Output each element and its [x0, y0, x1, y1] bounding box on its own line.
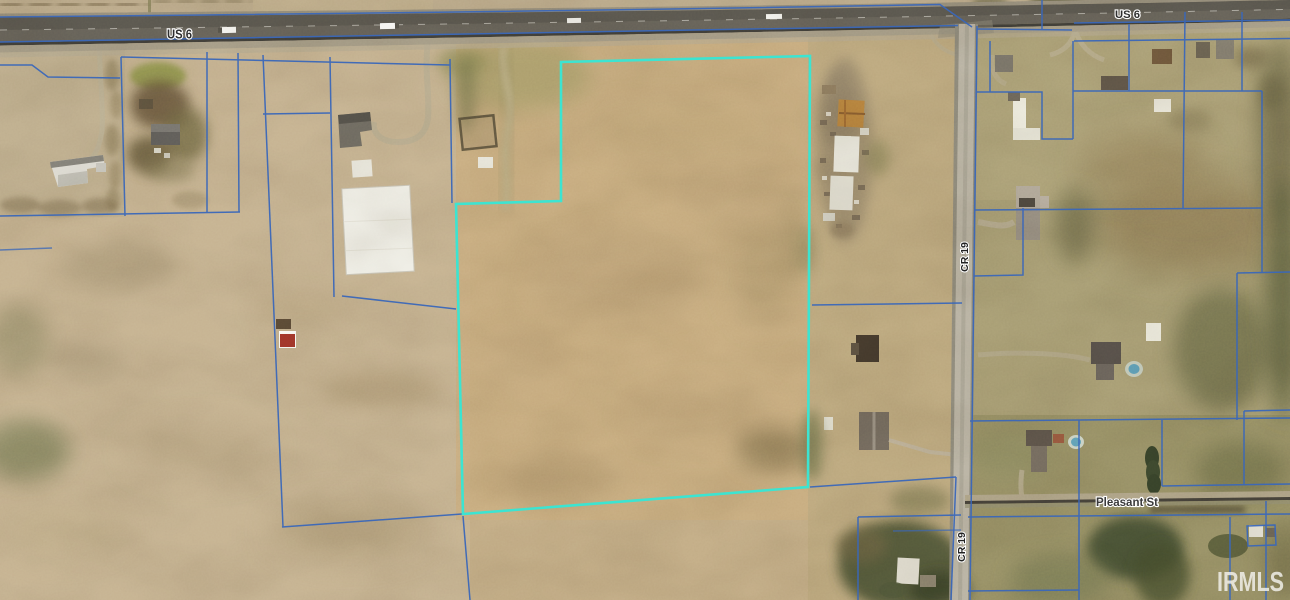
svg-text:US 6: US 6: [167, 27, 192, 42]
svg-text:CR 19: CR 19: [959, 242, 971, 272]
svg-text:US 6: US 6: [1115, 9, 1140, 21]
svg-text:Pleasant St: Pleasant St: [1096, 497, 1158, 509]
svg-text:IRMLS: IRMLS: [1217, 566, 1284, 597]
svg-text:CR 19: CR 19: [956, 532, 968, 562]
